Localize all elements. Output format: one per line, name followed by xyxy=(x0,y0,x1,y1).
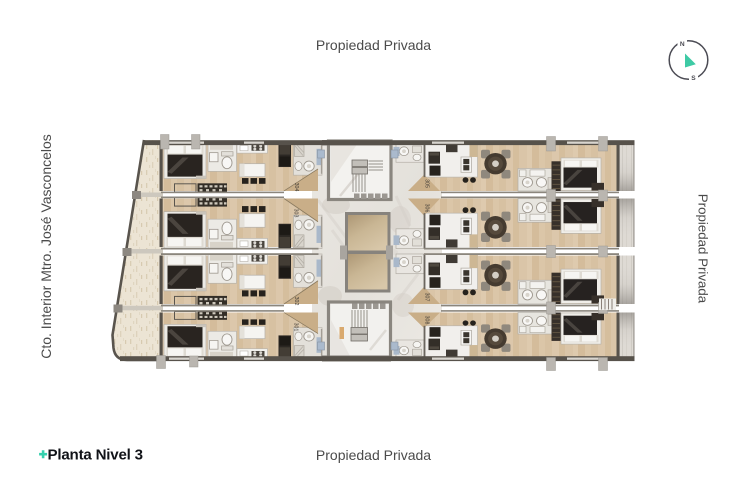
svg-text:307: 307 xyxy=(424,293,430,302)
svg-text:N: N xyxy=(680,41,685,48)
svg-text:Planta Nivel 3: Planta Nivel 3 xyxy=(48,446,143,463)
svg-text:305: 305 xyxy=(424,179,430,188)
svg-text:Propiedad Privada: Propiedad Privada xyxy=(316,37,431,53)
svg-text:Propiedad Privada: Propiedad Privada xyxy=(316,447,431,463)
svg-text:304: 304 xyxy=(293,183,299,192)
svg-text:Cto. Interior Mtro. José Vasco: Cto. Interior Mtro. José Vasconcelos xyxy=(38,134,54,359)
svg-text:301: 301 xyxy=(293,323,299,332)
svg-text:Propiedad Privada: Propiedad Privada xyxy=(696,194,711,304)
svg-text:303: 303 xyxy=(293,209,299,218)
svg-text:308: 308 xyxy=(424,316,430,325)
svg-text:306: 306 xyxy=(424,204,430,213)
svg-text:S: S xyxy=(691,75,696,82)
svg-text:302: 302 xyxy=(293,297,299,306)
